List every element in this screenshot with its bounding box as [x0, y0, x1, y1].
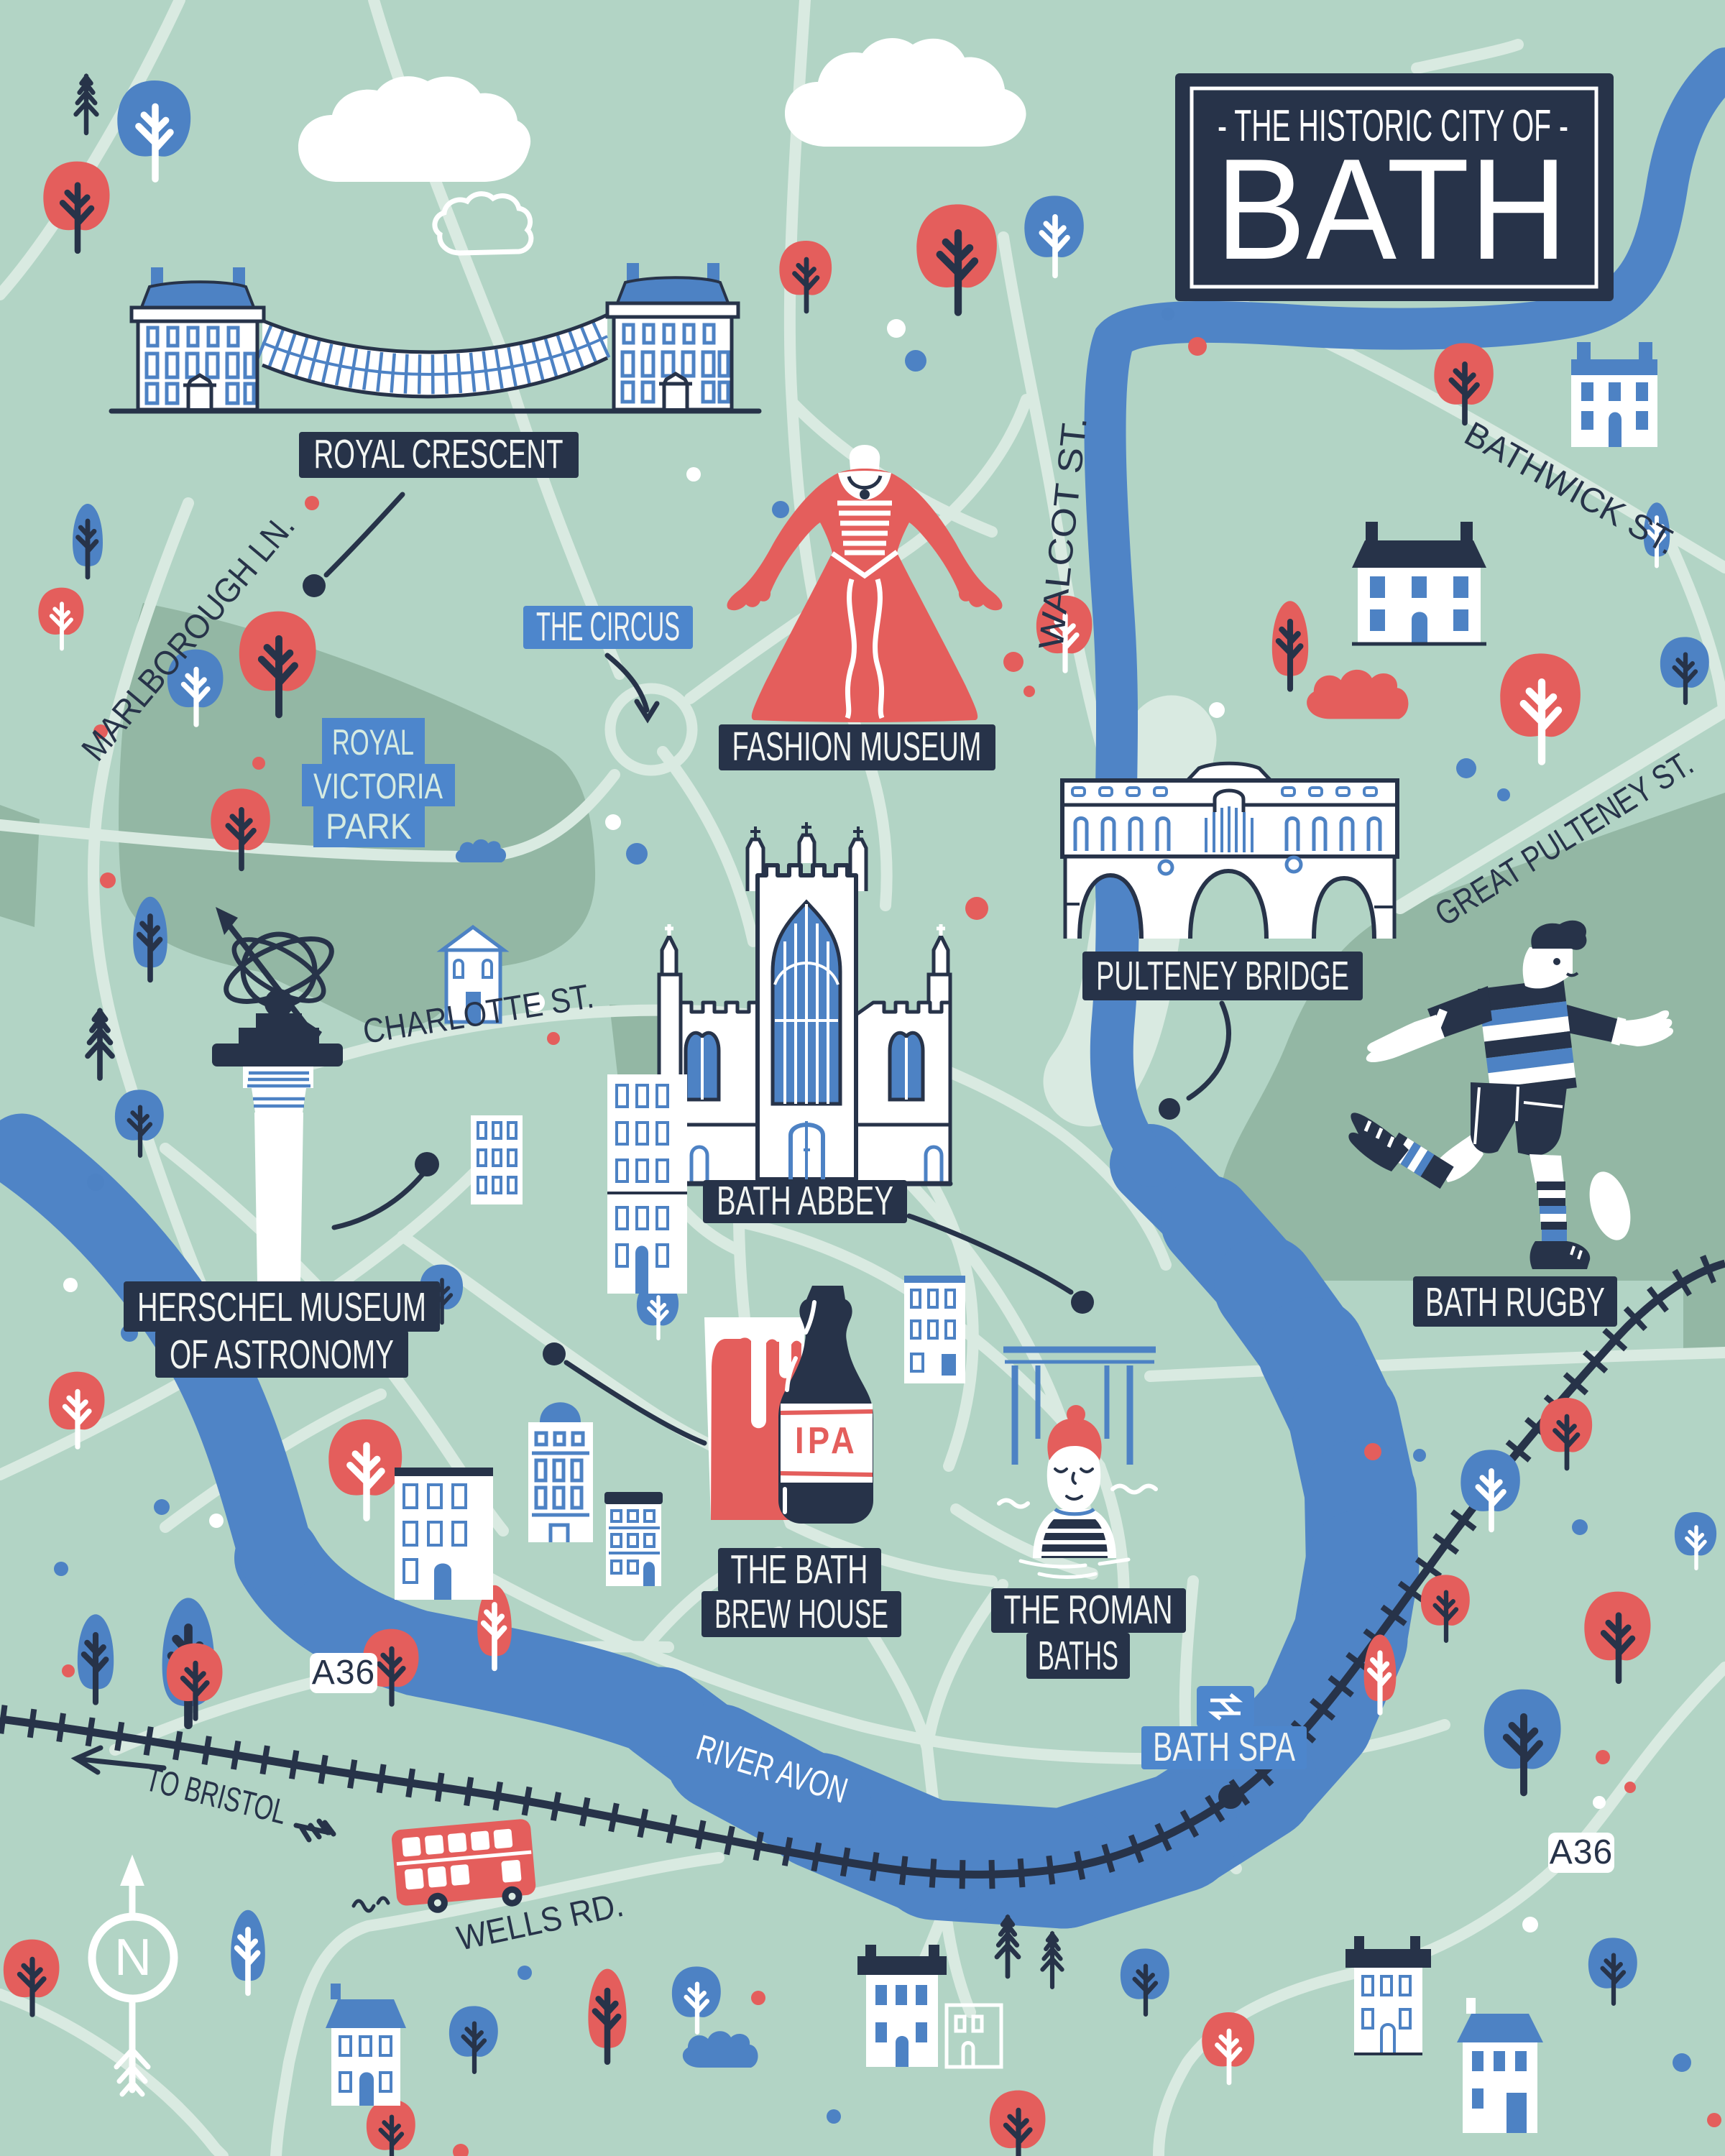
svg-text:A36: A36 [1550, 1833, 1613, 1871]
svg-text:BATH: BATH [1215, 129, 1568, 290]
svg-text:PARK: PARK [326, 806, 412, 847]
svg-text:THE CIRCUS: THE CIRCUS [536, 604, 680, 650]
svg-text:ROYAL: ROYAL [332, 722, 414, 763]
svg-text:PULTENEY BRIDGE: PULTENEY BRIDGE [1096, 953, 1349, 999]
svg-text:BATH ABBEY: BATH ABBEY [717, 1178, 893, 1224]
svg-text:THE BATH: THE BATH [731, 1547, 868, 1593]
svg-text:A36: A36 [312, 1654, 375, 1692]
svg-text:N: N [114, 1929, 152, 1986]
svg-text:THE ROMAN: THE ROMAN [1004, 1587, 1173, 1633]
svg-text:ROYAL CRESCENT: ROYAL CRESCENT [314, 431, 563, 477]
svg-text:OF ASTRONOMY: OF ASTRONOMY [170, 1332, 394, 1378]
svg-text:IPA: IPA [795, 1420, 858, 1462]
svg-text:HERSCHEL MUSEUM: HERSCHEL MUSEUM [137, 1284, 426, 1330]
svg-text:BREW HOUSE: BREW HOUSE [714, 1591, 888, 1637]
svg-text:BATH RUGBY: BATH RUGBY [1425, 1279, 1605, 1325]
svg-text:VICTORIA: VICTORIA [313, 766, 443, 806]
svg-text:BATHS: BATHS [1038, 1633, 1118, 1679]
svg-text:FASHION MUSEUM: FASHION MUSEUM [732, 724, 982, 770]
svg-text:BATH SPA: BATH SPA [1153, 1724, 1295, 1770]
